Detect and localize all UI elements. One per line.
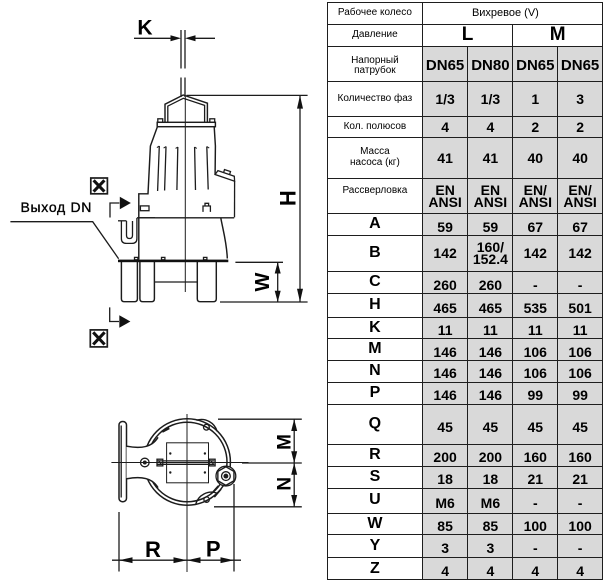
svg-text:N: N	[274, 477, 295, 491]
svg-text:H: H	[276, 190, 301, 206]
svg-text:P: P	[206, 536, 221, 561]
svg-text:Выход DN: Выход DN	[21, 199, 93, 215]
svg-text:R: R	[145, 537, 161, 562]
svg-text:K: K	[137, 17, 152, 40]
svg-text:M: M	[274, 434, 295, 450]
svg-text:W: W	[252, 272, 274, 291]
